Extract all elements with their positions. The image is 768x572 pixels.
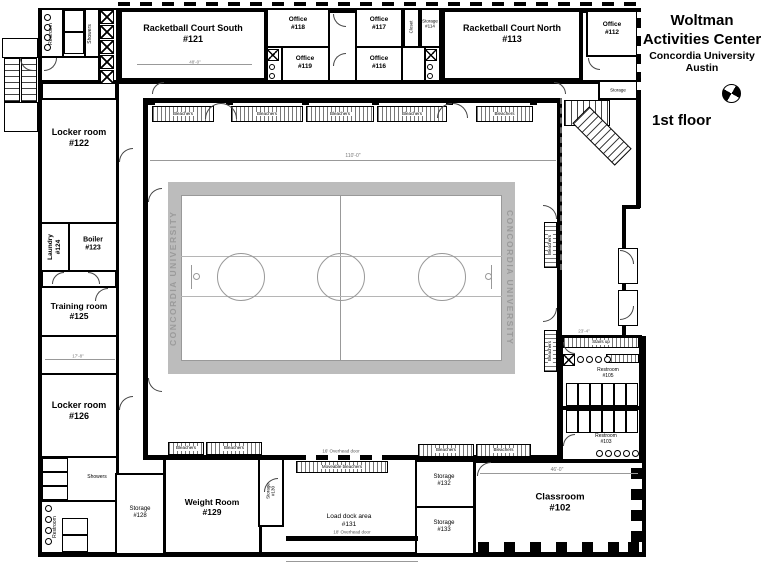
label-weight-room: Weight Room #129 xyxy=(185,497,240,517)
building-title-line2: Activities Center xyxy=(636,31,768,50)
locker-icon xyxy=(100,10,114,24)
door-swing-icon xyxy=(88,272,100,284)
label-classroom: Classroom #102 xyxy=(535,492,584,515)
label-storage: Storage xyxy=(610,87,626,92)
hatch-label: Stairs up xyxy=(590,340,612,345)
hatch-bleachers: Bleachers xyxy=(168,442,204,455)
label-23-4: 23'-4" xyxy=(578,328,589,333)
hatch-moveable-bleachers: Moveable bleachers xyxy=(296,461,388,473)
sink-icon xyxy=(45,516,52,523)
room-entrance-canopy xyxy=(2,38,38,58)
room-locker-room-122 xyxy=(40,98,118,224)
basket-hoop-icon xyxy=(193,273,200,280)
wall-column xyxy=(148,98,155,105)
room-entry-landing xyxy=(4,102,38,132)
label-16-overhead-door: 16' Overhead door xyxy=(322,448,359,453)
sink-icon xyxy=(596,450,603,457)
stall xyxy=(578,383,590,406)
sink-icon xyxy=(45,505,52,512)
wall xyxy=(286,536,418,541)
label-boiler: Boiler #123 xyxy=(83,237,103,254)
floor-label: 1st floor xyxy=(652,112,711,129)
court-brand-left: CONCORDIA UNIVERSITY xyxy=(168,182,181,374)
hatch-bleachers: Bleachers xyxy=(231,106,303,122)
wall-column xyxy=(530,542,541,553)
locker-icon xyxy=(100,25,114,39)
hatch-label: Bleachers xyxy=(434,448,458,453)
stairs-icon xyxy=(4,58,20,102)
sink-icon xyxy=(577,356,584,363)
label-office: Office #119 xyxy=(296,55,314,71)
label-restroom: Restroom xyxy=(48,23,54,45)
label-locker-room: Locker room #126 xyxy=(52,400,107,422)
locker-icon xyxy=(425,49,437,61)
stall xyxy=(590,383,602,406)
sink-icon xyxy=(45,538,52,545)
sink-icon xyxy=(604,356,611,363)
stall xyxy=(590,410,602,433)
wall-column xyxy=(631,489,642,500)
wall-column xyxy=(628,542,639,553)
locker-icon xyxy=(267,49,279,61)
label-storage: Storage #114 xyxy=(422,19,438,30)
campus-name: Austin xyxy=(636,62,768,75)
sink-icon xyxy=(44,14,51,21)
label-office: Office #117 xyxy=(370,16,388,32)
label-storage: Storage #133 xyxy=(433,520,454,534)
sink-icon xyxy=(427,64,433,70)
stall xyxy=(626,383,638,406)
label-racketball-court-south: Racketball Court South #121 xyxy=(143,23,243,45)
hatch-label: Bleachers xyxy=(491,448,515,453)
stall xyxy=(602,410,614,433)
court-circle xyxy=(317,253,365,301)
door-swing-icon xyxy=(52,272,64,284)
label-racketball-court-north: Racketball Court North #113 xyxy=(463,23,561,45)
dimension-line xyxy=(480,473,638,474)
sink-icon xyxy=(269,73,275,79)
wall-column xyxy=(302,98,309,105)
room-racketball-court-north-113 xyxy=(441,8,583,82)
label-17-8: 17'-8" xyxy=(72,353,83,358)
wall-column xyxy=(631,531,642,542)
hatch-bleachers: Bleachers xyxy=(476,444,531,457)
compass-icon xyxy=(722,84,741,103)
sink-icon xyxy=(427,73,433,79)
hatch-label: Bleachers xyxy=(492,112,516,117)
label-laundry: Laundry #124 xyxy=(47,234,63,260)
label-closet: Closet xyxy=(408,21,413,34)
wall-column xyxy=(556,542,567,553)
door-swing-icon xyxy=(333,53,346,66)
hatch-label: Bleachers xyxy=(222,446,246,451)
sink-icon xyxy=(623,450,630,457)
hatch-bleachers: Bleachers xyxy=(476,106,533,122)
stall xyxy=(62,518,88,535)
university-name: Concordia University xyxy=(636,50,768,63)
stall xyxy=(62,535,88,552)
court-circle xyxy=(418,253,466,301)
label-showers: Showers xyxy=(87,24,93,43)
stall xyxy=(566,410,578,433)
floor-plan: BleachersBleachersBleachersBleachersBlea… xyxy=(0,0,768,572)
label-110-0: 110'-0" xyxy=(345,153,360,159)
hatch-bleachers: Bleachers xyxy=(206,442,262,455)
wall-column xyxy=(582,542,593,553)
label-storage: Storage #132 xyxy=(433,474,454,488)
hatch-label: Bleachers xyxy=(548,233,553,257)
wall xyxy=(84,8,86,58)
label-18-overhead-door: 18' Overhead door xyxy=(333,529,370,534)
stall xyxy=(566,383,578,406)
stall xyxy=(64,10,84,32)
sink-icon xyxy=(605,450,612,457)
label-showers: Showers xyxy=(87,474,106,480)
stall xyxy=(42,486,68,500)
dimension-line xyxy=(150,160,556,161)
label-training-room: Training room #125 xyxy=(51,301,108,321)
stall xyxy=(578,410,590,433)
hatch-label: Bleachers xyxy=(174,446,198,451)
sink-icon xyxy=(44,44,51,51)
locker-icon xyxy=(100,40,114,54)
label-storage: Storage #128 xyxy=(129,506,150,520)
wall-column xyxy=(530,98,537,105)
hatch-bleachers: Bleachers xyxy=(544,330,557,372)
hatch-bleachers: Bleachers xyxy=(418,444,474,457)
label-48-0: 48'-0" xyxy=(189,59,200,64)
stall xyxy=(602,383,614,406)
hatch-label: Bleachers xyxy=(255,112,279,117)
room-racketball-court-south-121 xyxy=(118,8,268,82)
hatch-label: Bleachers xyxy=(400,112,424,117)
wall-column xyxy=(478,542,489,553)
stall xyxy=(42,472,68,486)
door-swing-icon xyxy=(119,396,133,410)
label-office: Office #116 xyxy=(370,55,388,71)
sink-icon xyxy=(595,356,602,363)
label-office: Office #112 xyxy=(603,21,621,37)
hatch-bleachers: Bleachers xyxy=(306,106,374,122)
locker-icon xyxy=(100,55,114,69)
basket-hoop-icon xyxy=(485,273,492,280)
stall xyxy=(64,32,84,54)
label-restroom: Restroom #105 xyxy=(597,367,619,379)
label-restroom: Restroom #103 xyxy=(595,433,617,445)
label-restroom: Restroom xyxy=(52,516,58,538)
label-locker-room: Locker room #122 xyxy=(52,127,107,149)
wall-column xyxy=(631,510,642,521)
hatch-label: Moveable bleachers xyxy=(320,465,364,470)
stall xyxy=(42,458,68,472)
label-storage: Storage #130 xyxy=(266,483,277,499)
label-load-dock-area: Load dock area #131 xyxy=(327,513,372,529)
sink-icon xyxy=(586,356,593,363)
locker-icon xyxy=(563,354,575,366)
hatch-label: Bleachers xyxy=(328,112,352,117)
court-circle xyxy=(217,253,265,301)
wall-dashed xyxy=(294,455,390,460)
dimension-line xyxy=(45,359,115,360)
label-46-0: 46'-0" xyxy=(551,467,564,473)
door-swing-icon xyxy=(588,58,600,70)
basket-line xyxy=(191,265,192,289)
dimension-line xyxy=(286,561,418,562)
sink-icon xyxy=(269,64,275,70)
stall xyxy=(614,410,626,433)
wall-column xyxy=(504,542,515,553)
title-block: Woltman Activities Center Concordia Univ… xyxy=(636,12,768,103)
hatch-bleachers: Bleachers xyxy=(544,222,557,268)
door-swing-icon xyxy=(119,148,133,162)
stall xyxy=(626,410,638,433)
label-office: Office #118 xyxy=(289,16,307,32)
sink-icon xyxy=(614,450,621,457)
wall-column xyxy=(372,98,379,105)
wall-column xyxy=(608,542,619,553)
sink-icon xyxy=(632,450,639,457)
sink-icon xyxy=(45,527,52,534)
locker-icon xyxy=(100,70,114,84)
hatch-label: Bleachers xyxy=(548,339,553,363)
stall xyxy=(614,383,626,406)
door-swing-icon xyxy=(333,14,346,27)
building-title-line1: Woltman xyxy=(636,12,768,31)
wall-dashed xyxy=(118,2,640,6)
hatch-label: Bleachers xyxy=(171,112,195,117)
court-brand-right: CONCORDIA UNIVERSITY xyxy=(502,182,515,374)
